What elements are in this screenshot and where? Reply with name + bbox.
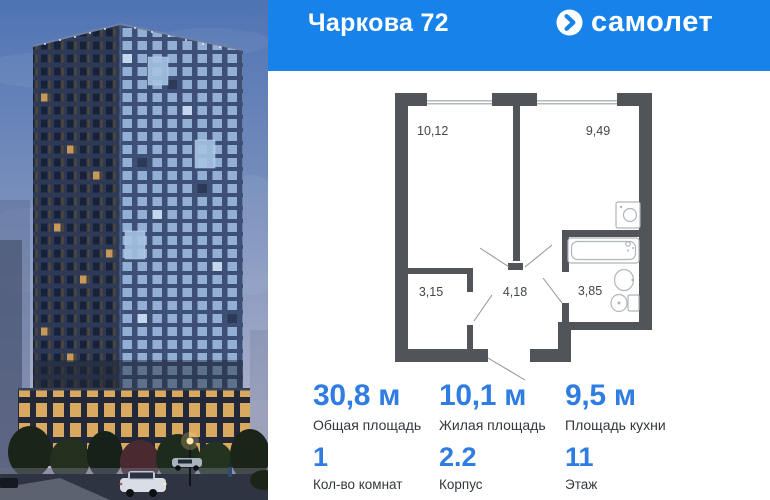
floor-plan-drawing: 10,12 9,49 3,15 4,18 3,85 [395, 93, 652, 385]
car-dark [0, 478, 18, 488]
pedestrian [228, 463, 232, 477]
stat-value: 11 [565, 444, 725, 471]
stat-value: 1 [313, 444, 439, 471]
header-bar: Чаркова 72 самолет [268, 0, 770, 71]
stat-label: Корпус [439, 477, 565, 492]
building-photo [0, 0, 268, 500]
stat-label: Кол-во комнат [313, 477, 439, 492]
stat-label: Площадь кухни [565, 417, 725, 433]
room-area-label: 3,15 [419, 285, 443, 299]
room-area-label: 9,49 [586, 124, 610, 138]
stat-kitchen-area: 9,5 м Площадь кухни [565, 381, 725, 433]
stat-living-area: 10,1 м Жилая площадь [439, 381, 565, 433]
arrow-circle-icon [556, 9, 583, 36]
room-area-label: 4,18 [503, 285, 527, 299]
toilet-icon [611, 295, 639, 312]
floor-plan: 10,12 9,49 3,15 4,18 3,85 [395, 93, 652, 385]
area-stats: 30,8 м Общая площадь 10,1 м Жилая площад… [313, 381, 725, 433]
stat-value: 10,1 м [439, 381, 565, 411]
project-title: Чаркова 72 [308, 9, 449, 38]
stat-label: Общая площадь [313, 417, 439, 433]
stat-label: Жилая площадь [439, 417, 565, 433]
brand-name: самолет [591, 9, 713, 36]
stat-value: 2.2 [439, 444, 565, 471]
building-photo-illustration [0, 0, 268, 500]
stat-value: 30,8 м [313, 381, 439, 411]
details-panel: Чаркова 72 самолет [268, 0, 770, 500]
listing-card[interactable]: Чаркова 72 самолет [0, 0, 770, 500]
tower [33, 24, 243, 404]
stat-total-area: 30,8 м Общая площадь [313, 381, 439, 433]
stat-building: 2.2 Корпус [439, 444, 565, 492]
washing-machine-icon [616, 202, 640, 228]
stat-label: Этаж [565, 477, 725, 492]
room-area-label: 10,12 [417, 124, 448, 138]
detail-stats: 1 Кол-во комнат 2.2 Корпус 11 Этаж [313, 444, 725, 492]
sink-icon [615, 270, 634, 291]
stat-value: 9,5 м [565, 381, 725, 411]
room-area-label: 3,85 [578, 284, 602, 298]
brand-logo[interactable]: самолет [556, 9, 713, 36]
stat-rooms: 1 Кол-во комнат [313, 444, 439, 492]
bathtub-icon [568, 238, 639, 263]
stat-floor: 11 Этаж [565, 444, 725, 492]
